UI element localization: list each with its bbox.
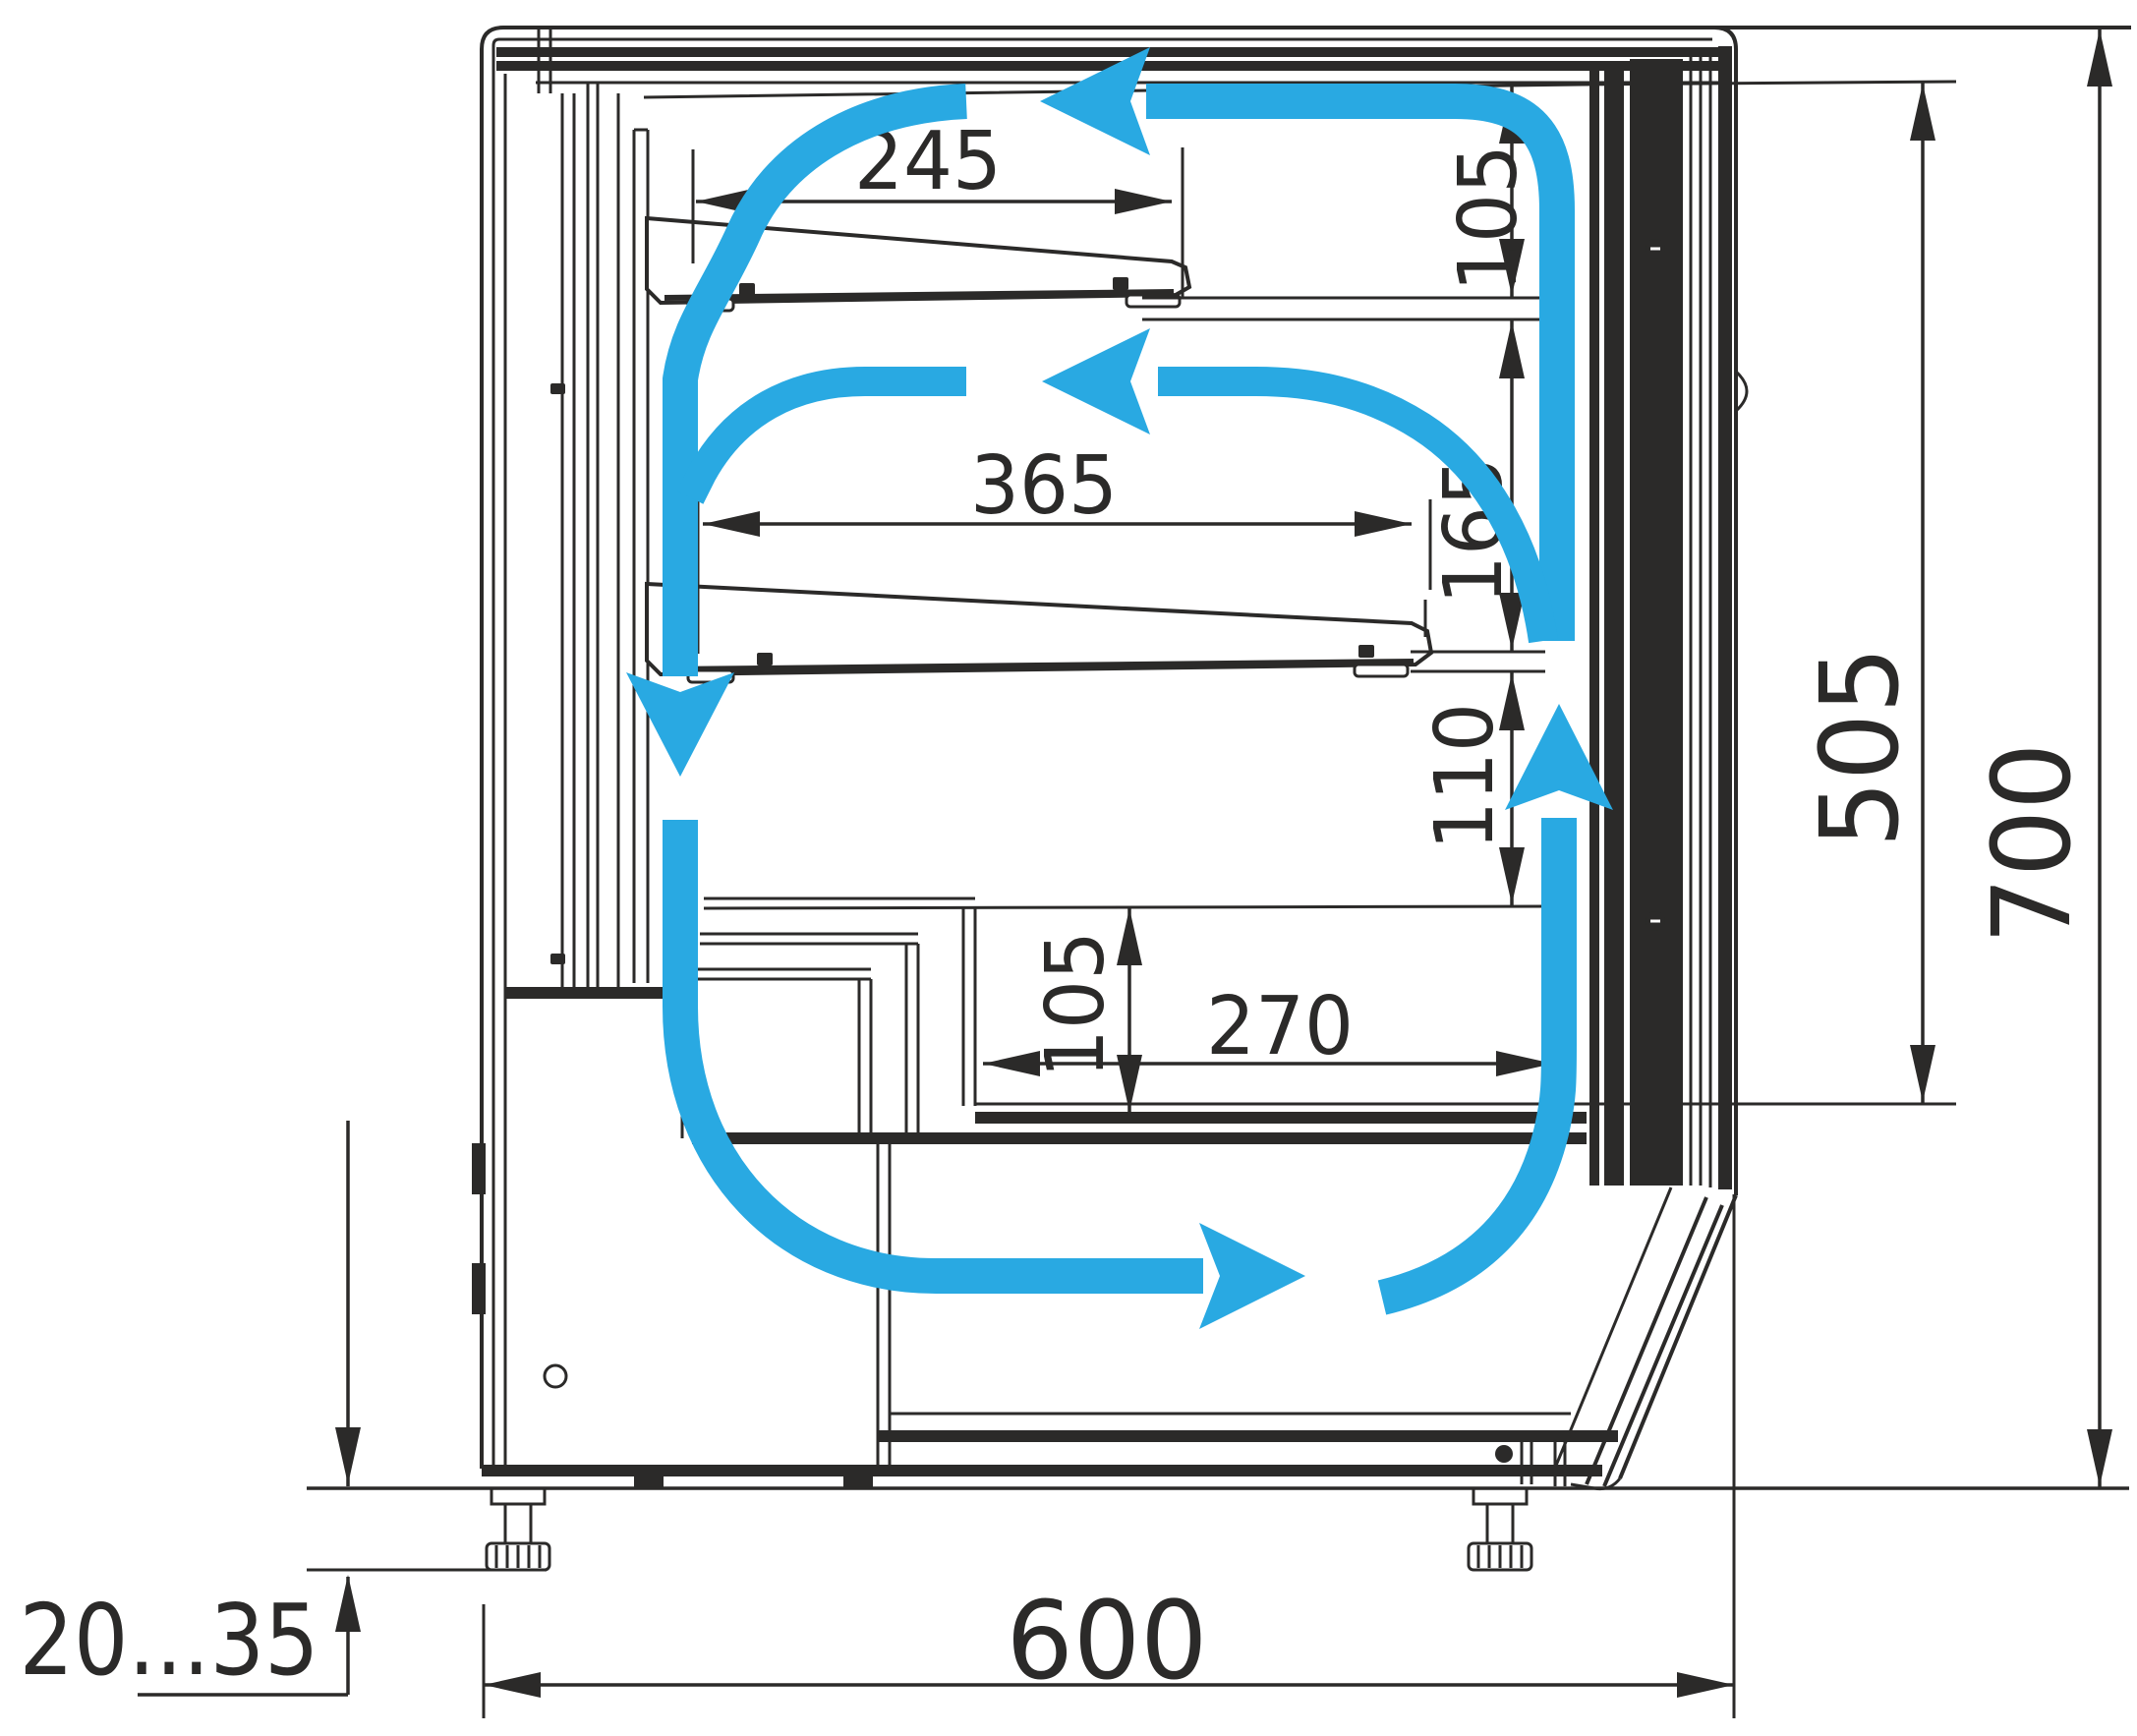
- front-glass-band: [1630, 59, 1683, 1186]
- dimension-label-110: 110: [1418, 703, 1512, 850]
- airflow-bottom-flow: [680, 820, 1203, 1276]
- dimension-label-105-well: 105: [1029, 931, 1123, 1078]
- compartment-door-hole: [545, 1365, 566, 1387]
- door-hinge: [472, 1263, 486, 1314]
- arrowhead-left-middle-icon: [1042, 328, 1150, 434]
- front-glass-band: [1589, 65, 1599, 1186]
- screw: [1495, 1445, 1513, 1463]
- front-glass-band: [1604, 65, 1624, 1186]
- deck-band: [975, 1112, 1587, 1124]
- dimension-label-365: 365: [970, 439, 1118, 533]
- shelf-bracket: [1355, 665, 1408, 676]
- shelf-bolt: [1113, 277, 1128, 290]
- adjustable-foot-right: [1469, 1488, 1531, 1570]
- display-case-section-drawing: 245 365 105 165 110 105 270 505 700 600 …: [0, 0, 2137, 1736]
- angled-front-glass: [1620, 1195, 1736, 1478]
- base-tab: [843, 1476, 873, 1488]
- screw: [550, 954, 565, 964]
- base-bottom-band: [482, 1465, 1602, 1476]
- foot-stem: [1487, 1504, 1513, 1545]
- airflow-front-riser: [1382, 818, 1559, 1298]
- foot-stem: [505, 1504, 531, 1545]
- base-tab: [634, 1476, 664, 1488]
- shelf-bolt: [1358, 645, 1374, 658]
- screw: [550, 383, 565, 394]
- angled-front-glass: [1604, 1205, 1722, 1486]
- dimension-label-270: 270: [1206, 980, 1354, 1073]
- door-hinge: [472, 1143, 486, 1194]
- foot-nut: [1473, 1488, 1527, 1504]
- angled-front-glass-inner: [1553, 1187, 1671, 1473]
- shelf-bolt: [757, 653, 773, 665]
- compartment-top: [505, 987, 682, 999]
- dimension-label-600: 600: [1007, 1578, 1208, 1704]
- dimension-arrowheads: [335, 29, 2112, 1698]
- shelf-bolt: [739, 283, 755, 296]
- front-frame-band: [1718, 46, 1732, 1189]
- foot-nut: [491, 1488, 545, 1504]
- dimension-label-105-top: 105: [1442, 145, 1535, 292]
- arrowhead-right-icon: [1199, 1223, 1305, 1329]
- arrowhead-down-icon: [626, 672, 734, 777]
- well-back-edge: [704, 906, 1545, 908]
- deck-lower-band: [692, 1132, 1587, 1144]
- canopy-band-1: [496, 47, 1718, 57]
- airflow-middle-return: [690, 381, 966, 497]
- dimension-label-505: 505: [1797, 647, 1923, 848]
- diagram-canvas: 245 365 105 165 110 105 270 505 700 600 …: [0, 0, 2137, 1736]
- dimension-label-20-35: 20...35: [20, 1583, 319, 1698]
- base-top-band: [878, 1430, 1618, 1442]
- adjustable-foot-left: [487, 1488, 549, 1570]
- dimension-label-700: 700: [1969, 743, 2095, 945]
